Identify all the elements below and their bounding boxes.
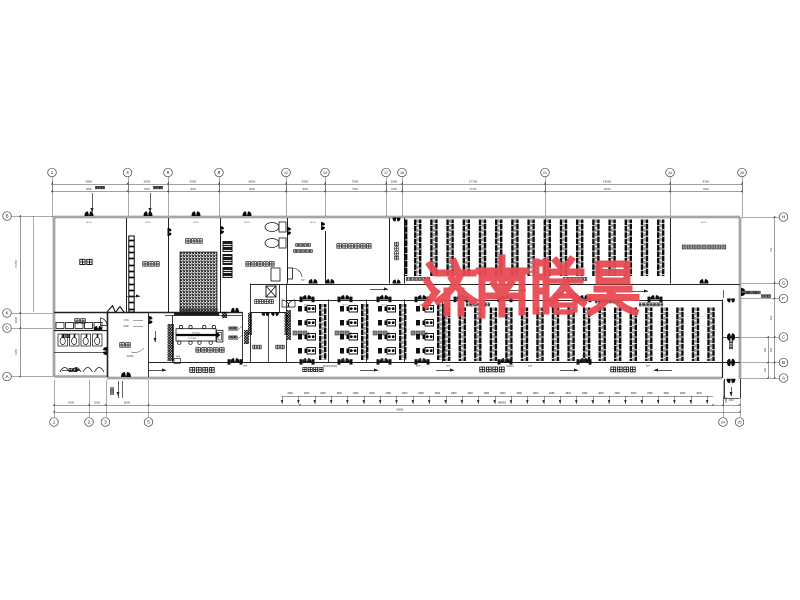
svg-text:1800: 1800 — [391, 180, 398, 184]
svg-text:M727: M727 — [381, 305, 387, 307]
svg-text:M725: M725 — [244, 222, 250, 224]
svg-text:4800: 4800 — [402, 392, 408, 395]
svg-text:4500: 4500 — [302, 180, 309, 184]
svg-text:14600: 14600 — [603, 187, 611, 191]
svg-text:300: 300 — [764, 347, 767, 352]
svg-text:2980: 2980 — [614, 392, 620, 395]
svg-text:68092: 68092 — [498, 400, 506, 404]
svg-text:18: 18 — [400, 171, 404, 175]
svg-text:1800: 1800 — [14, 316, 18, 323]
svg-text:M727: M727 — [342, 305, 348, 307]
svg-text:M1021: M1021 — [342, 360, 349, 362]
svg-text:5000: 5000 — [144, 187, 150, 191]
svg-text:24: 24 — [721, 420, 725, 424]
svg-text:M727: M727 — [304, 305, 310, 307]
svg-text:2980: 2980 — [516, 392, 522, 395]
svg-text:4800: 4800 — [598, 392, 604, 395]
svg-text:2: 2 — [88, 420, 91, 425]
svg-text:750: 750 — [769, 247, 773, 252]
svg-text:M1021: M1021 — [419, 360, 426, 362]
svg-text:5000: 5000 — [144, 180, 151, 184]
svg-text:4800: 4800 — [696, 392, 702, 395]
svg-text:4: 4 — [126, 170, 129, 175]
svg-text:7500: 7500 — [352, 187, 358, 191]
svg-text:A2020: A2020 — [127, 355, 135, 358]
svg-text:1:50: 1:50 — [123, 318, 129, 322]
svg-text:200: 200 — [764, 367, 767, 372]
svg-text:M1021: M1021 — [304, 360, 311, 362]
svg-text:17750: 17750 — [469, 180, 478, 184]
svg-text:4800: 4800 — [435, 392, 441, 395]
svg-text:6: 6 — [167, 170, 170, 175]
svg-text:SYT08a: SYT08a — [192, 333, 201, 335]
svg-text:M725: M725 — [145, 222, 151, 224]
svg-text:M725: M725 — [193, 222, 199, 224]
svg-text:17: 17 — [384, 171, 388, 175]
svg-text:3: 3 — [104, 420, 107, 425]
svg-text:4800: 4800 — [664, 392, 670, 395]
svg-text:12: 12 — [284, 171, 288, 175]
svg-text:25: 25 — [740, 171, 744, 175]
svg-text:17750: 17750 — [469, 187, 477, 191]
svg-text:8300: 8300 — [703, 187, 709, 191]
svg-text:8000: 8000 — [249, 180, 256, 184]
svg-text:7500: 7500 — [352, 180, 359, 184]
svg-text:4800: 4800 — [369, 392, 375, 395]
svg-text:4000: 4000 — [190, 180, 197, 184]
svg-text:5600: 5600 — [124, 400, 131, 404]
svg-text:8: 8 — [218, 170, 221, 175]
svg-text:300: 300 — [769, 347, 773, 352]
svg-text:G: G — [782, 281, 786, 286]
svg-text:M1021: M1021 — [506, 365, 514, 368]
svg-text:4500: 4500 — [302, 187, 308, 191]
svg-text:9800: 9800 — [86, 180, 93, 184]
svg-text:2980: 2980 — [647, 392, 653, 395]
svg-text:2980: 2980 — [320, 392, 326, 395]
svg-text:H: H — [782, 215, 785, 220]
svg-text:M727: M727 — [652, 305, 658, 307]
svg-text:M725: M725 — [86, 222, 92, 224]
svg-text:SYT08b: SYT08b — [188, 338, 197, 340]
svg-text:1: 1 — [51, 170, 54, 175]
svg-text:24: 24 — [668, 171, 672, 175]
svg-text:M1021: M1021 — [581, 360, 588, 362]
svg-text:4800: 4800 — [337, 392, 343, 395]
svg-text:8300: 8300 — [703, 180, 710, 184]
svg-text:4800: 4800 — [631, 392, 637, 395]
svg-text:17250: 17250 — [14, 260, 18, 268]
svg-text:420: 420 — [769, 315, 773, 320]
svg-text:4800: 4800 — [304, 392, 310, 395]
svg-text:14: 14 — [323, 171, 327, 175]
svg-text:M48: M48 — [123, 324, 129, 328]
svg-text:2980: 2980 — [484, 392, 490, 395]
svg-text:2980: 2980 — [582, 392, 588, 395]
svg-text:M1021: M1021 — [381, 360, 388, 362]
svg-text:1800: 1800 — [391, 187, 397, 191]
svg-text:25: 25 — [738, 420, 742, 424]
svg-text:2980: 2980 — [386, 392, 392, 395]
svg-text:6150: 6150 — [14, 348, 18, 355]
svg-text:4000: 4000 — [190, 187, 196, 191]
svg-text:M1021(5030): M1021(5030) — [323, 365, 337, 368]
svg-text:9800: 9800 — [86, 187, 92, 191]
svg-text:80892: 80892 — [396, 407, 404, 411]
svg-text:14600: 14600 — [603, 180, 612, 184]
svg-text:B: B — [782, 360, 785, 365]
svg-text:2000: 2000 — [94, 400, 101, 404]
svg-text:2980: 2980 — [418, 392, 424, 395]
svg-text:4800: 4800 — [467, 392, 473, 395]
svg-text:2980: 2980 — [549, 392, 555, 395]
svg-text:4800: 4800 — [565, 392, 571, 395]
svg-text:M725: M725 — [310, 222, 316, 224]
svg-text:M1021: M1021 — [502, 360, 509, 362]
svg-text:2980: 2980 — [451, 392, 457, 395]
svg-text:1: 1 — [53, 420, 56, 425]
svg-text:2980: 2980 — [353, 392, 359, 395]
svg-text:5: 5 — [147, 420, 150, 425]
svg-text:4800: 4800 — [500, 392, 506, 395]
svg-text:1000: 1000 — [728, 400, 734, 402]
svg-text:8000: 8000 — [249, 187, 255, 191]
svg-text:B: B — [5, 214, 8, 219]
svg-text:2980: 2980 — [680, 392, 686, 395]
svg-text:F: F — [782, 296, 785, 301]
svg-text:21: 21 — [543, 171, 547, 175]
svg-text:4800: 4800 — [533, 392, 539, 395]
svg-text:2980: 2980 — [287, 392, 293, 395]
svg-text:M725: M725 — [701, 222, 707, 224]
svg-text:4300: 4300 — [68, 400, 75, 404]
